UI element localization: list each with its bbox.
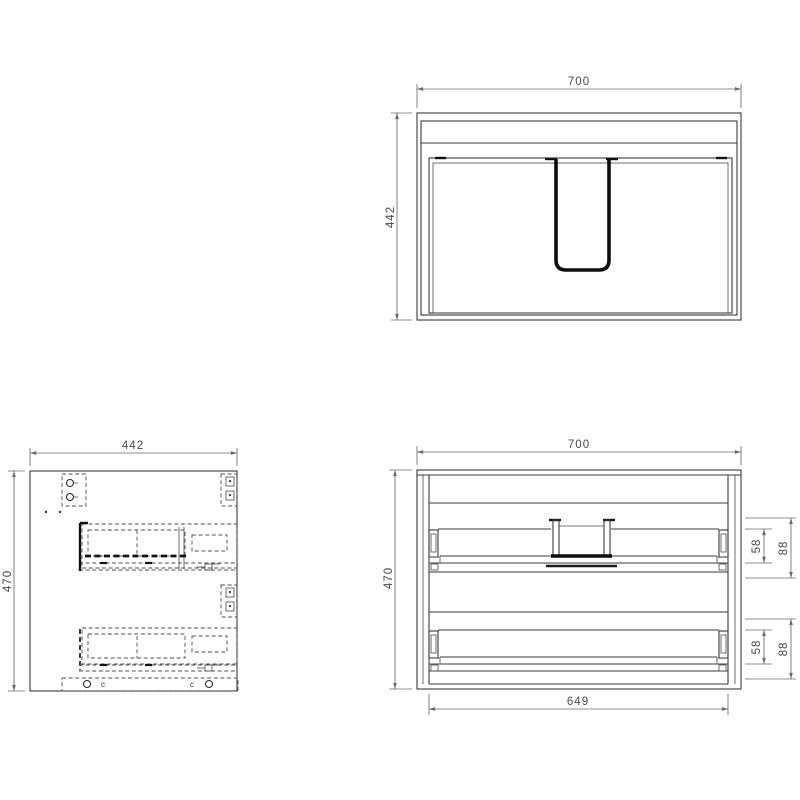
bracket-screw-icon	[67, 480, 74, 487]
drawer-slide-right	[717, 631, 728, 671]
plan-depth-dim-label: 442	[385, 206, 397, 228]
side-width-dim-label: 442	[122, 440, 144, 452]
lower-drawer-height-dimensions: 58 88	[745, 619, 796, 679]
side-upper-drawer-hidden	[79, 523, 237, 571]
plan-top-panel	[417, 113, 741, 320]
drawer-rail-height-dim-label: 88	[778, 541, 790, 556]
side-width-dimension: 442	[30, 440, 237, 466]
plan-width-dim-label: 700	[568, 76, 590, 88]
plan-drawer-inner	[433, 163, 728, 313]
technical-drawing-canvas: 700 442	[0, 0, 800, 800]
plan-width-dimension: 700	[417, 76, 741, 108]
front-height-dim-label: 470	[383, 567, 395, 589]
front-height-dimension: 470	[383, 470, 412, 689]
side-view: c c 442 470	[2, 440, 238, 691]
front-width-dimension: 700	[417, 439, 741, 465]
drawer-slide-left	[429, 530, 440, 570]
side-height-dimension: 470	[2, 471, 25, 691]
side-slide-fitting-mid-right	[221, 585, 237, 617]
front-view: 700 470 649 58 88	[383, 439, 796, 715]
side-height-dim-label: 470	[2, 570, 14, 592]
plan-cabinet-outline	[417, 113, 741, 320]
front-cabinet-outline	[417, 470, 741, 689]
drawer-rail-height-dim-label: 88	[778, 642, 790, 657]
side-wall-bracket-fitting	[45, 474, 86, 513]
plan-depth-dimension: 442	[385, 113, 412, 320]
front-plumbing-notch	[546, 520, 617, 566]
front-inner-width-dim-label: 649	[567, 696, 589, 708]
plan-plumbing-cutout	[556, 159, 609, 270]
front-lower-drawer	[429, 630, 728, 671]
cam-fitting-label: c	[101, 680, 105, 689]
drawer-slide-left	[429, 631, 440, 671]
cam-fitting-label: c	[190, 680, 194, 689]
side-lower-drawer-hidden	[79, 628, 237, 671]
front-inner-width-dimension: 649	[429, 694, 728, 715]
front-width-dim-label: 700	[568, 439, 590, 451]
cam-fitting-icon	[84, 681, 91, 688]
plan-top-panel-inner	[421, 121, 737, 315]
plan-view: 700 442	[385, 76, 741, 320]
cam-fitting-icon	[206, 681, 213, 688]
upper-drawer-height-dimensions: 58 88	[745, 518, 796, 578]
drawer-box-height-dim-label: 58	[751, 539, 763, 554]
technical-drawing-page: 700 442	[0, 0, 800, 800]
drawer-slide-right	[717, 530, 728, 570]
bracket-screw-icon	[67, 494, 74, 501]
plan-drawer-outline	[429, 158, 732, 313]
side-bottom-rail-hidden: c c	[62, 678, 238, 691]
drawer-box-height-dim-label: 58	[751, 640, 763, 655]
side-slide-fitting-top-right	[221, 474, 237, 506]
